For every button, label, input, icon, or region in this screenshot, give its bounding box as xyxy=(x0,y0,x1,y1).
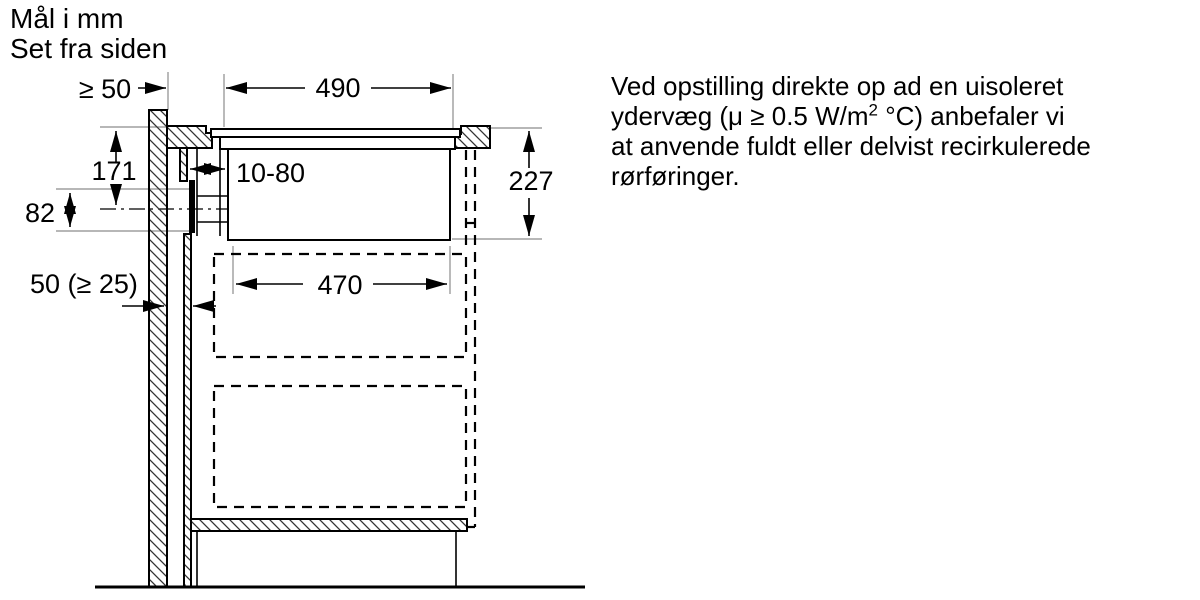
dim-inner-width: 470 xyxy=(317,270,362,300)
dim-outlet-height: 82 xyxy=(25,198,55,228)
dim-cutout-width: 490 xyxy=(315,73,360,103)
lower-niche-outline xyxy=(214,386,466,507)
units-label: Mål i mm xyxy=(10,4,167,34)
dim-wall-clearance: ≥ 50 xyxy=(79,74,131,104)
cabinet-bottom-shelf xyxy=(191,519,467,531)
wall-section xyxy=(149,110,167,587)
duct-wall-flange xyxy=(189,180,195,233)
cabinet-rear-panel xyxy=(184,234,191,587)
worktop-left xyxy=(167,126,212,148)
note-line-1: Ved opstilling direkte op ad en uisolere… xyxy=(611,71,1116,101)
hob-frame xyxy=(220,137,455,149)
hob-glass-top xyxy=(211,129,460,137)
view-label: Set fra siden xyxy=(10,34,167,64)
superscript-2: 2 xyxy=(869,100,878,119)
note-line-2: ydervæg (μ ≥ 0.5 W/m2 °C) anbefaler vi xyxy=(611,101,1116,131)
drawing-title: Mål i mm Set fra siden xyxy=(10,4,167,64)
dim-unit-depth: 227 xyxy=(508,166,553,196)
note-line-4: rørføringer. xyxy=(611,161,1116,191)
note-text: Ved opstilling direkte op ad en uisolere… xyxy=(611,71,1116,191)
rear-panel-upper-stub xyxy=(180,148,187,181)
manual-installation-page: ≥ 50 490 171 10-80 82 227 50 (≥ 25) 470 … xyxy=(0,0,1200,600)
note-line-3: at anvende fuldt eller delvist recirkule… xyxy=(611,131,1116,161)
duct-outlet xyxy=(189,148,228,236)
dim-rear-gap: 50 (≥ 25) xyxy=(30,269,138,299)
dim-duct-range: 10-80 xyxy=(236,158,305,188)
dim-top-to-axis: 171 xyxy=(91,156,136,186)
